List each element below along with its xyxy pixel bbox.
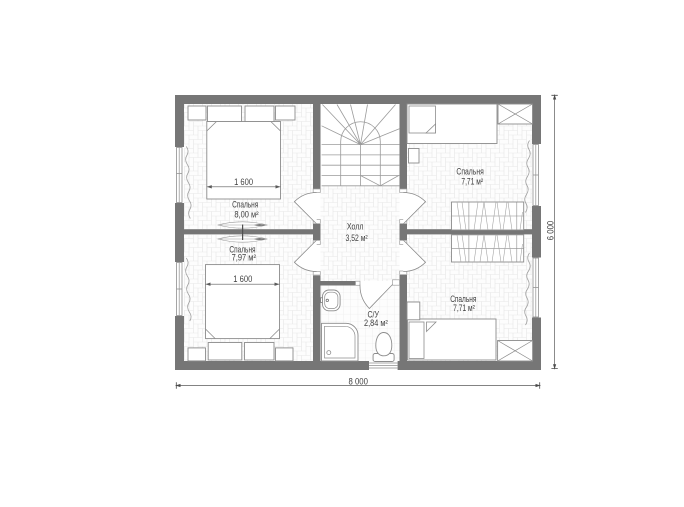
svg-text:8 000: 8 000 [349,377,368,387]
svg-text:Спальня: Спальня [232,200,258,210]
svg-text:6 000: 6 000 [545,221,555,240]
svg-text:Спальня: Спальня [456,167,483,177]
svg-text:2,84 м²: 2,84 м² [364,318,388,328]
svg-text:1 600: 1 600 [234,177,253,187]
svg-text:3,52 м²: 3,52 м² [346,233,368,243]
svg-text:1 600: 1 600 [233,274,252,284]
svg-text:Холл: Холл [347,222,364,232]
svg-text:7,71 м²: 7,71 м² [453,303,475,313]
svg-text:7,97 м²: 7,97 м² [232,253,256,263]
svg-text:7,71 м²: 7,71 м² [461,177,483,187]
svg-text:8,00 м²: 8,00 м² [234,209,258,219]
